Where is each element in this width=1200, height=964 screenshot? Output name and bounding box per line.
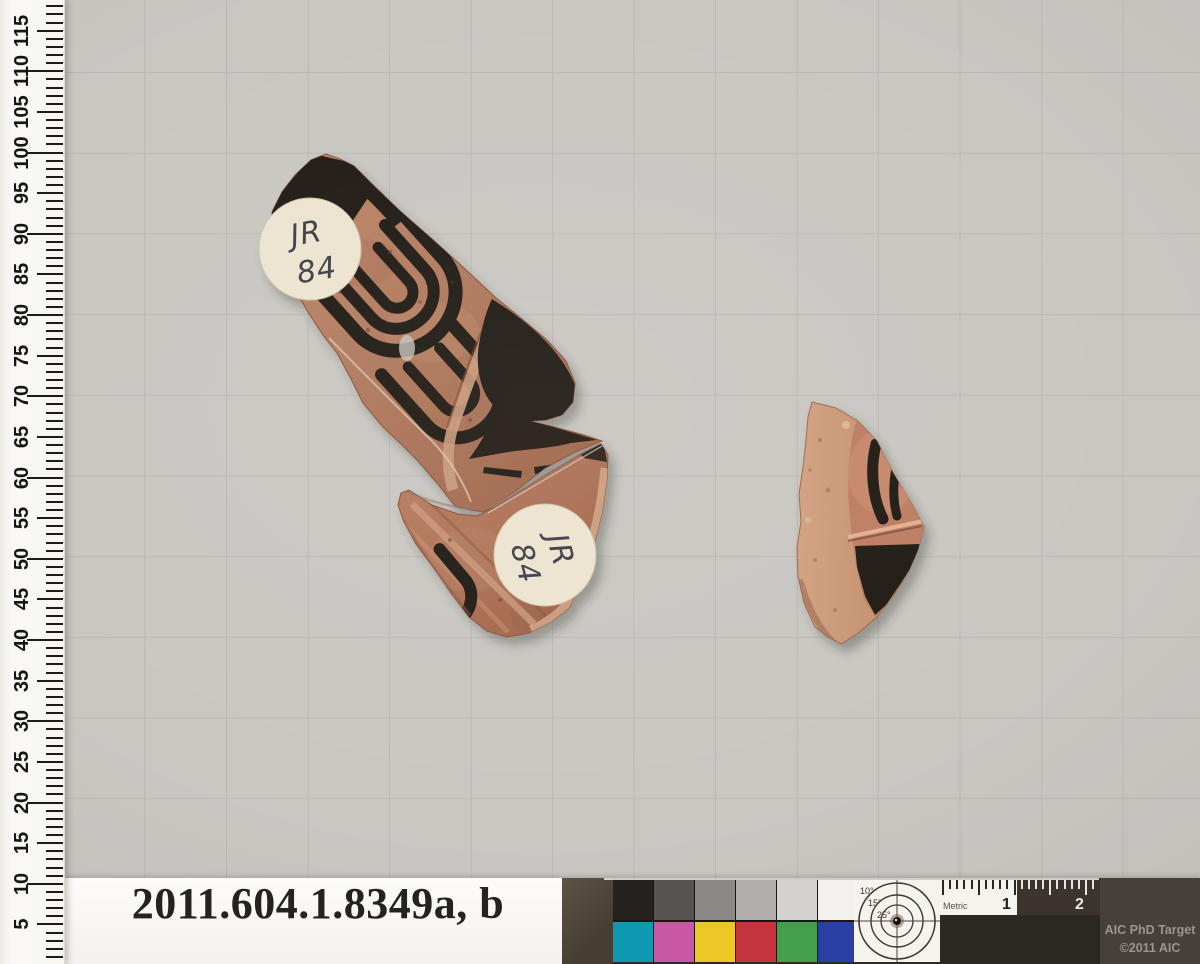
glaze-lobe: [478, 299, 576, 422]
ruler-tick: [46, 858, 63, 860]
ruler-tick: [46, 127, 63, 129]
ruler-tick: [46, 533, 63, 535]
metric-tick: [978, 880, 980, 895]
ruler-tick: [46, 5, 63, 7]
ruler-number: 75: [11, 335, 33, 377]
ruler-tick: [46, 78, 63, 80]
ruler-tick: [46, 420, 63, 422]
ruler-number: 50: [11, 538, 33, 580]
ruler-tick: [46, 582, 63, 584]
specimen-label-a1: JR 84: [259, 198, 361, 300]
ruler-tick: [46, 160, 63, 162]
ruler-number: 55: [11, 497, 33, 539]
ruler-tick: [46, 62, 63, 64]
ruler-tick: [46, 371, 63, 373]
ruler-tick: [46, 330, 63, 332]
ruler-tick: [46, 696, 63, 698]
ruler-number: 20: [11, 782, 33, 824]
ruler-tick: [46, 363, 63, 365]
color-patch-4: [736, 922, 776, 963]
bullseye-label-25: 25°: [877, 910, 891, 920]
metric-tick: [999, 880, 1001, 889]
metric-tick: [1056, 880, 1058, 889]
gray-patch-1: [613, 880, 653, 920]
metric-tick: [1042, 880, 1044, 889]
ruler-tick: [46, 428, 63, 430]
ruler-tick: [46, 95, 63, 97]
metric-tick: [1085, 880, 1087, 895]
ruler-tick: [37, 598, 63, 600]
ruler-tick: [46, 663, 63, 665]
ruler-tick: [46, 338, 63, 340]
metric-tick: [1078, 880, 1080, 889]
swatch-column-1: [613, 880, 653, 962]
ruler-tick: [46, 566, 63, 568]
color-patch-5: [777, 922, 817, 963]
ruler-tick: [37, 923, 63, 925]
ruler-tick: [46, 265, 63, 267]
gray-patch-2: [654, 880, 694, 920]
ruler-tick: [46, 793, 63, 795]
fragment-a-upper-sherd: JR 84: [258, 154, 602, 512]
ruler-tick: [46, 525, 63, 527]
ruler-tick: [46, 282, 63, 284]
ruler-tick: [46, 834, 63, 836]
ruler-tick: [46, 347, 63, 349]
ruler-tick: [46, 168, 63, 170]
ruler-number: 30: [11, 700, 33, 742]
ruler-tick: [46, 810, 63, 812]
ruler-tick: [46, 875, 63, 877]
ruler-tick: [46, 493, 63, 495]
swatch-column-3: [695, 880, 735, 962]
specimen-label-a2: JR 84: [494, 504, 596, 606]
ruler-tick: [46, 387, 63, 389]
ruler-tick: [46, 501, 63, 503]
ruler-tick: [46, 403, 63, 405]
ruler-tick: [46, 13, 63, 15]
ruler-tick: [46, 306, 63, 308]
ruler-tick: [37, 192, 63, 194]
ruler-tick: [46, 899, 63, 901]
ruler-tick: [46, 249, 63, 251]
ruler-tick: [46, 217, 63, 219]
metric-tick: [1049, 880, 1051, 895]
ruler-number: 45: [11, 578, 33, 620]
ruler-number: 25: [11, 741, 33, 783]
ruler-tick: [46, 647, 63, 649]
ruler-number: 65: [11, 416, 33, 458]
ruler-tick: [37, 273, 63, 275]
ruler-tick: [46, 631, 63, 633]
ruler-tick: [46, 745, 63, 747]
ruler-number: 115: [11, 10, 33, 52]
ruler-tick: [46, 241, 63, 243]
ruler-tick: [37, 842, 63, 844]
ruler-tick: [37, 517, 63, 519]
gray-patch-5: [777, 880, 817, 920]
artifact-photo: JR 84: [0, 0, 1200, 964]
ruler-number: 35: [11, 660, 33, 702]
fragment-a: JR 84: [258, 154, 608, 638]
credit-line-2: ©2011 AIC: [1120, 940, 1181, 958]
ruler-tick: [46, 956, 63, 958]
ruler-number: 70: [11, 375, 33, 417]
ruler-tick: [46, 712, 63, 714]
ruler-tick: [46, 87, 63, 89]
metric-tick: [992, 880, 994, 889]
ruler-tick: [46, 655, 63, 657]
ruler-tick: [46, 542, 63, 544]
ruler-tick: [46, 728, 63, 730]
ruler-tick: [46, 915, 63, 917]
ruler-tick: [46, 615, 63, 617]
ruler-number: 105: [11, 91, 33, 133]
ruler-number: 15: [11, 822, 33, 864]
ruler-tick: [46, 623, 63, 625]
ruler-tick: [37, 355, 63, 357]
ruler-tick: [37, 111, 63, 113]
ruler-number: 60: [11, 457, 33, 499]
ruler-tick: [46, 485, 63, 487]
metric-tick: [1021, 880, 1023, 889]
accession-number: 2011.604.1.8349a, b: [0, 878, 562, 964]
ruler-tick: [46, 826, 63, 828]
ruler-tick: [46, 452, 63, 454]
gray-patch-6: [818, 880, 858, 920]
ruler-tick: [46, 460, 63, 462]
ruler-number: 110: [11, 50, 33, 92]
ruler-tick: [46, 54, 63, 56]
bullseye-resolution-target: 10° 15° 25°: [854, 880, 940, 962]
ruler-tick: [46, 22, 63, 24]
metric-tick: [985, 880, 987, 889]
ruler-tick: [46, 176, 63, 178]
ruler-tick: [46, 672, 63, 674]
target-end-block: [562, 878, 613, 964]
ruler-number: 80: [11, 294, 33, 336]
ruler-tick: [46, 737, 63, 739]
swatch-column-6: [818, 880, 858, 962]
ruler-tick: [37, 30, 63, 32]
ruler-tick: [46, 135, 63, 137]
metric-tick: [963, 880, 965, 889]
ruler-number: 85: [11, 253, 33, 295]
ruler-tick: [46, 550, 63, 552]
ruler-tick: [46, 607, 63, 609]
metric-mark-1: 1: [1002, 896, 1011, 914]
ruler-tick: [46, 444, 63, 446]
ruler-tick: [46, 688, 63, 690]
gray-patch-3: [695, 880, 735, 920]
ruler-number: 40: [11, 619, 33, 661]
ruler-tick: [46, 574, 63, 576]
color-patch-3: [695, 922, 735, 963]
ruler-tick: [46, 290, 63, 292]
ruler-tick: [46, 785, 63, 787]
ruler-tick: [46, 948, 63, 950]
ruler-tick: [46, 38, 63, 40]
ruler-number: 95: [11, 172, 33, 214]
bullseye-label-10: 10°: [860, 886, 874, 896]
ruler-tick: [37, 761, 63, 763]
ruler-tick: [46, 891, 63, 893]
metric-tick: [1064, 880, 1066, 889]
metric-tick: [942, 880, 944, 895]
ruler-number: 10: [11, 863, 33, 905]
metric-mini-ruler: Metric 1 2: [940, 880, 1100, 915]
ruler-tick: [46, 907, 63, 909]
ruler-tick: [46, 379, 63, 381]
metric-tick: [1071, 880, 1073, 889]
ruler-tick: [46, 753, 63, 755]
swatch-grid: [613, 880, 858, 962]
fragment-b: [797, 402, 931, 644]
ruler-tick: [46, 200, 63, 202]
metric-label: Metric: [943, 901, 968, 911]
metric-tick: [1014, 880, 1016, 895]
ruler-tick: [46, 850, 63, 852]
ruler-tick: [46, 509, 63, 511]
ruler: 5101520253035404550556065707580859095100…: [0, 0, 65, 964]
caption-strip: 2011.604.1.8349a, b: [0, 878, 562, 964]
ruler-tick: [46, 769, 63, 771]
bullseye-label-15: 15°: [868, 898, 882, 908]
ruler-tick: [46, 412, 63, 414]
gray-patch-4: [736, 880, 776, 920]
color-patch-1: [613, 922, 653, 963]
metric-tick: [971, 880, 973, 889]
credit-line-1: AIC PhD Target: [1105, 922, 1196, 940]
ruler-tick: [46, 940, 63, 942]
metric-tick: [1092, 880, 1094, 889]
metric-tick: [1028, 880, 1030, 889]
color-patch-2: [654, 922, 694, 963]
ruler-tick: [46, 208, 63, 210]
label-a1-line2: 84: [294, 250, 340, 291]
ruler-number: 5: [11, 903, 33, 945]
ruler-tick: [46, 298, 63, 300]
ruler-tick: [46, 322, 63, 324]
ruler-tick: [46, 46, 63, 48]
ruler-tick: [46, 590, 63, 592]
ruler-tick: [46, 777, 63, 779]
metric-tick: [1035, 880, 1037, 889]
swatch-column-4: [736, 880, 776, 962]
specimen-canvas: JR 84: [0, 0, 1200, 964]
swatch-column-5: [777, 880, 817, 962]
metric-tick: [956, 880, 958, 889]
color-patch-6: [818, 922, 858, 963]
ruler-tick: [46, 225, 63, 227]
ruler-tick: [46, 143, 63, 145]
target-credit: AIC PhD Target ©2011 AIC: [1100, 878, 1200, 964]
ruler-tick: [46, 704, 63, 706]
metric-tick: [949, 880, 951, 889]
ruler-tick: [46, 818, 63, 820]
ruler-tick: [46, 184, 63, 186]
ruler-tick: [37, 436, 63, 438]
target-dark-block: [940, 915, 1100, 964]
ruler-tick: [46, 932, 63, 934]
metric-tick: [1006, 880, 1008, 889]
ruler-number: 90: [11, 213, 33, 255]
ruler-tick: [46, 867, 63, 869]
ruler-tick: [46, 468, 63, 470]
ruler-tick: [37, 680, 63, 682]
metric-mark-2: 2: [1075, 896, 1084, 914]
ruler-number: 100: [11, 132, 33, 174]
ruler-tick: [46, 103, 63, 105]
ruler-tick: [46, 257, 63, 259]
swatch-column-2: [654, 880, 694, 962]
ruler-tick: [46, 119, 63, 121]
color-calibration-target: 10° 15° 25° Metric 1 2 AIC PhD Target ©2…: [562, 878, 1200, 964]
bottom-strip: 2011.604.1.8349a, b 10° 15° 25: [0, 878, 1200, 964]
